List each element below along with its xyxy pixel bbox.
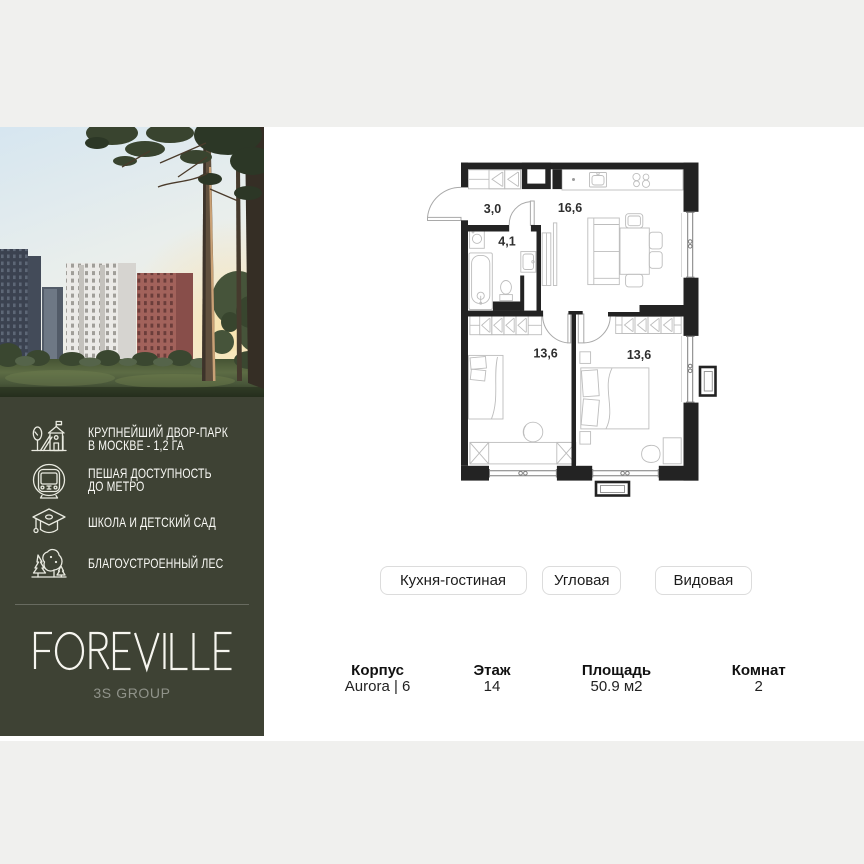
svg-text:4,1: 4,1: [498, 235, 515, 249]
svg-text:3,0: 3,0: [484, 202, 501, 216]
svg-text:13,6: 13,6: [533, 347, 557, 361]
svg-text:13,6: 13,6: [627, 348, 651, 362]
svg-text:16,6: 16,6: [558, 201, 582, 215]
